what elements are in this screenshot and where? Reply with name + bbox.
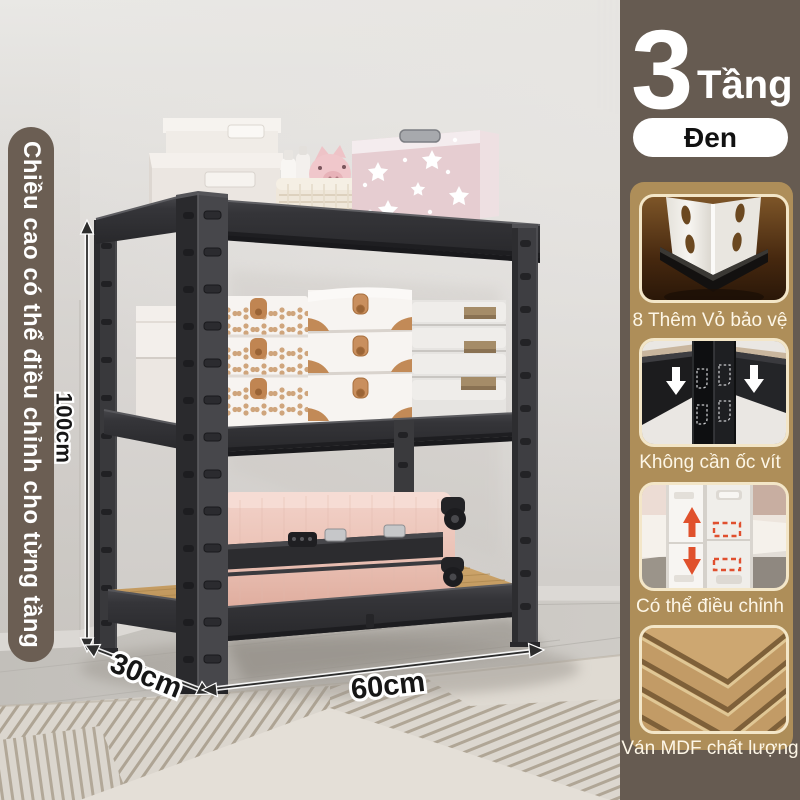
svg-text:100cm: 100cm	[52, 392, 77, 463]
